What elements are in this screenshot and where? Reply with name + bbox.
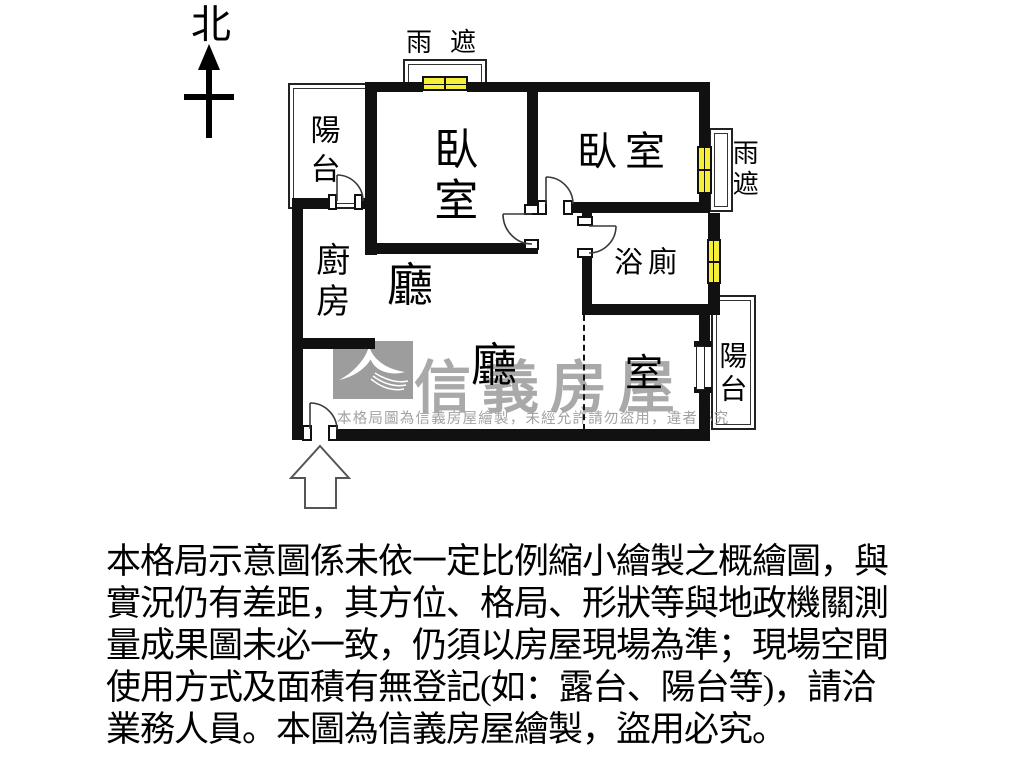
bedroom-right-window [697, 146, 712, 194]
hall-upper-label: 廳 [387, 262, 433, 310]
bedroom-left-west-wall [365, 82, 377, 255]
bathroom-label: 浴廁 [614, 248, 682, 278]
bedroom-right-east-wall-upper [699, 82, 710, 147]
den-label: 室 [625, 355, 663, 395]
bedroom-left-label: 臥室 [428, 126, 474, 228]
bedroom-left-door-jamb-bottom [524, 239, 539, 250]
bedrooms-divider-wall [527, 82, 538, 214]
bedroom-right-door-jamb-right [563, 200, 573, 215]
bathroom-door-jamb-top [577, 216, 593, 226]
disclaimer-text: 本格局示意圖係未依一定比例縮小繪製之概繪圖，與 實況仍有差距，其方位、格局、形狀… [106, 541, 888, 751]
west-outer-wall [292, 198, 303, 440]
balcony-top-south-wall [292, 198, 332, 209]
south-outer-wall [338, 429, 708, 441]
bedroom-left-window [422, 76, 468, 91]
north-arrow-shaft [206, 68, 212, 138]
disclaimer-line: 使用方式及面積有無登記(如：露台、陽台等)，請洽 [106, 667, 888, 709]
disclaimer-line: 本格局示意圖係未依一定比例縮小繪製之概繪圖，與 [106, 541, 888, 583]
balcony-door-jamb-right [354, 194, 363, 210]
kitchen-label: 廚房 [311, 242, 347, 324]
balcony-top-label: 陽台 [306, 114, 338, 192]
floor-plan-page: 北 信義房屋 本格局圖為信義房屋繪製，未經允許請勿盜用，違者必究 [0, 0, 1024, 768]
entrance-arrow-icon [291, 446, 349, 508]
disclaimer-line: 業務人員。本圖為信義房屋繪製，盜用必究。 [106, 709, 888, 751]
bathroom-east-wall-lower [708, 283, 720, 315]
den-east-wall-lower [699, 390, 710, 441]
bathroom-east-wall-upper [708, 213, 720, 241]
balcony-door-jamb-left [328, 194, 337, 210]
north-arrow-icon [198, 44, 220, 70]
bedroom-right-label: 臥室 [577, 131, 673, 173]
bathroom-door-jamb-bottom [577, 248, 593, 258]
balcony-right-label: 陽台 [716, 341, 745, 407]
bedroom-right-door-jamb-left [537, 200, 547, 215]
virtual-partition-dashed-line [583, 315, 585, 430]
hall-lower-label: 廳 [471, 342, 517, 390]
entrance-door-jamb-left [302, 425, 312, 441]
entrance-door-jamb-right [328, 425, 338, 441]
north-arrow-crossbar [184, 94, 234, 100]
disclaimer-line: 量成果圖未必一致，仍須以房屋現場為準；現場空間 [106, 625, 888, 667]
bedroom-left-south-wall [365, 243, 538, 254]
bedroom-right-south-wall [568, 202, 710, 213]
rain-shelter-right-label: 雨遮 [730, 139, 757, 201]
north-label: 北 [191, 4, 231, 46]
sinyi-logo-icon [333, 341, 413, 399]
bedroom-right-east-wall-lower [699, 192, 710, 213]
bathroom-door-arc [589, 226, 616, 253]
disclaimer-line: 實況仍有差距，其方位、格局、形狀等與地政機關測 [106, 583, 888, 625]
top-wall-right [467, 82, 710, 92]
balcony-sliding-door [696, 346, 705, 390]
rain-shelter-top-label: 雨遮 [406, 29, 494, 56]
watermark-notice: 本格局圖為信義房屋繪製，未經允許請勿盜用，違者必究 [337, 407, 730, 428]
kitchen-south-wall [295, 338, 375, 349]
bathroom-window [707, 239, 721, 284]
